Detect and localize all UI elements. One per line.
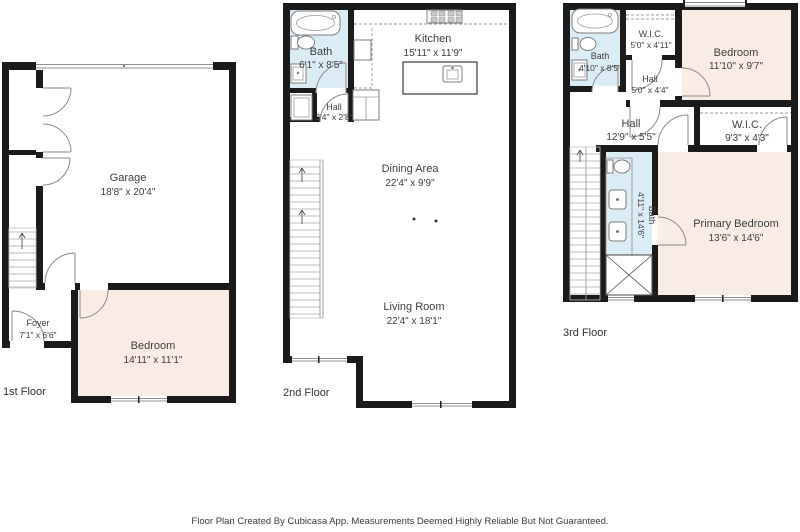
room-dims-garage: 18'8" x 20'4" — [101, 187, 156, 198]
room-label-hall-small: Hall — [642, 74, 658, 84]
room-dims-dining: 22'4" x 9'9" — [385, 178, 435, 189]
wic-rail-small — [626, 15, 675, 19]
stairs-first-floor — [9, 228, 36, 288]
room-dims-bath-3rd: 4'10" x 8'5" — [579, 63, 621, 73]
washer — [291, 95, 312, 120]
room-label-hall-3rd: Hall — [622, 118, 641, 130]
room-dims-hall-3rd: 12'9" x 5'5" — [606, 132, 656, 143]
stove — [427, 10, 462, 23]
garage-door-marker — [123, 65, 125, 67]
room-label-bath-2nd: Bath — [310, 46, 333, 58]
shower — [606, 255, 652, 295]
room-dims-hall-small: 5'0" x 4'4" — [631, 85, 668, 95]
stairs-third-floor — [570, 147, 600, 300]
room-dims-bedroom-3rd: 11'10" x 9'7" — [709, 61, 764, 72]
floor-plan-canvas: Garage 18'8" x 20'4" Foyer 7'1" x 6'6" B… — [0, 0, 800, 532]
room-label-primary-bedroom: Primary Bedroom — [693, 218, 779, 230]
room-dims-bedroom-1st: 14'11" x 11'1" — [124, 355, 183, 366]
room-label-bath-3rd: Bath — [591, 51, 610, 61]
room-dims-primary-bath: 4'11" x 14'6" — [636, 192, 646, 238]
room-label-hall-2nd: Hall — [326, 102, 342, 112]
floor-plan-page: Garage 18'8" x 20'4" Foyer 7'1" x 6'6" B… — [0, 0, 800, 532]
room-label-living: Living Room — [383, 301, 444, 313]
room-label-kitchen: Kitchen — [415, 33, 452, 45]
bathtub-3rd — [572, 9, 618, 33]
room-label-garage: Garage — [110, 172, 147, 184]
third-floor-plan: Bath 4'10" x 8'5" W.I.C. 5'0" x 4'11" Ha… — [563, 0, 798, 339]
kitchen-island — [403, 62, 477, 94]
bathtub — [291, 11, 340, 35]
room-label-dining: Dining Area — [382, 163, 440, 175]
room-label-primary-bath: Bath — [647, 206, 657, 225]
room-dims-primary-bedroom: 13'6" x 14'6" — [709, 233, 764, 244]
room-dims-bath-2nd: 6'1" x 8'5" — [299, 60, 343, 71]
room-label-wic-small: W.I.C. — [639, 29, 664, 39]
stairs-second-floor — [290, 160, 323, 318]
room-dims-living: 22'4" x 18'1" — [387, 316, 442, 327]
toilet-3rd — [572, 38, 596, 51]
room-dims-foyer: 7'1" x 6'6" — [19, 330, 56, 340]
room-label-foyer: Foyer — [26, 318, 49, 328]
room-label-wic-large: W.I.C. — [732, 119, 762, 131]
refrigerator — [353, 90, 379, 120]
floor-label-3rd: 3rd Floor — [563, 327, 607, 339]
toilet-primary-bath — [607, 160, 630, 173]
ceiling-fixture-marker — [435, 220, 438, 223]
room-dims-wic-small: 5'0" x 4'11" — [630, 40, 671, 50]
footer-disclaimer: Floor Plan Created By Cubicasa App. Meas… — [191, 516, 608, 527]
room-label-bedroom-1st: Bedroom — [131, 340, 176, 352]
dishwasher — [354, 40, 371, 60]
floor-label-1st: 1st Floor — [3, 386, 46, 398]
room-dims-wic-large: 9'3" x 4'3" — [725, 133, 769, 144]
room-label-bedroom-3rd: Bedroom — [714, 47, 759, 59]
first-floor-plan: Garage 18'8" x 20'4" Foyer 7'1" x 6'6" B… — [2, 62, 236, 403]
ceiling-fixture-marker — [413, 218, 416, 221]
room-dims-kitchen: 15'11" x 11'9" — [404, 48, 463, 59]
second-floor-plan: Bath 6'1" x 8'5" Kitchen 15'11" x 11'9" … — [283, 3, 516, 408]
floor-label-2nd: 2nd Floor — [283, 387, 330, 399]
room-dims-hall-2nd: 3'4" x 2'8" — [315, 112, 352, 122]
